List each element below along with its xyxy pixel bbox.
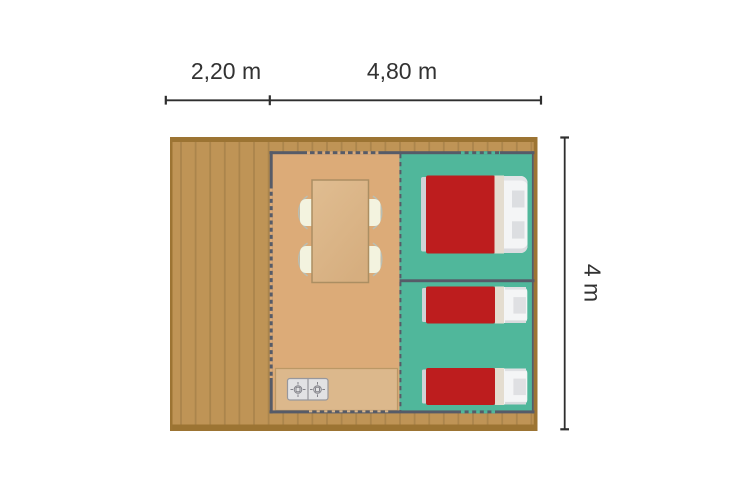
svg-text:4,80 m: 4,80 m bbox=[367, 58, 437, 84]
svg-text:2,20 m: 2,20 m bbox=[191, 58, 261, 84]
svg-text:4 m: 4 m bbox=[580, 264, 606, 302]
